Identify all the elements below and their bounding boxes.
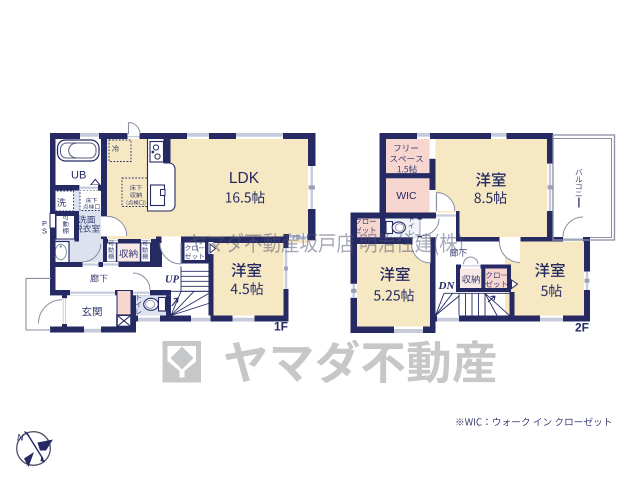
svg-text:1F: 1F: [274, 320, 288, 334]
svg-text:S: S: [42, 227, 47, 236]
svg-text:UP: UP: [165, 275, 180, 286]
svg-text:DN: DN: [438, 280, 456, 292]
svg-text:WIC: WIC: [396, 190, 417, 202]
svg-text:UB: UB: [71, 170, 86, 182]
svg-text:LDK: LDK: [229, 170, 260, 187]
svg-text:N: N: [17, 433, 24, 443]
svg-text:2F: 2F: [575, 321, 589, 335]
